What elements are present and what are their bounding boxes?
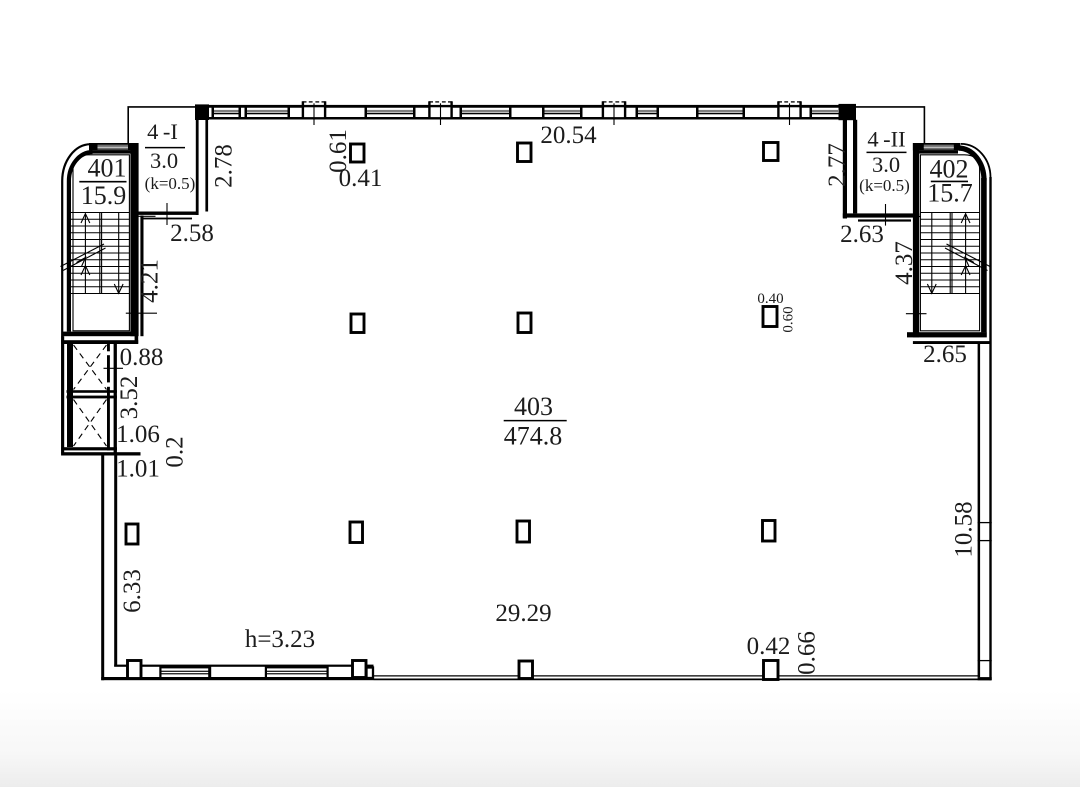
svg-text:2.65: 2.65 xyxy=(923,341,967,368)
svg-text:401: 401 xyxy=(88,154,127,183)
svg-text:4.37: 4.37 xyxy=(891,241,918,285)
svg-text:0.60: 0.60 xyxy=(780,306,796,332)
svg-text:0.66: 0.66 xyxy=(793,631,820,675)
svg-text:3.0: 3.0 xyxy=(150,148,178,173)
svg-text:0.2: 0.2 xyxy=(161,436,188,467)
svg-text:0.42: 0.42 xyxy=(747,633,791,660)
svg-text:2.78: 2.78 xyxy=(210,144,237,188)
svg-text:6.33: 6.33 xyxy=(119,569,146,613)
svg-text:2.58: 2.58 xyxy=(170,220,214,247)
svg-text:15.7: 15.7 xyxy=(927,179,973,208)
svg-text:4.21: 4.21 xyxy=(136,259,163,303)
svg-text:3.52: 3.52 xyxy=(116,376,143,420)
svg-text:4 -II: 4 -II xyxy=(867,127,905,152)
svg-text:1.06: 1.06 xyxy=(116,421,160,448)
svg-text:h=3.23: h=3.23 xyxy=(245,626,315,653)
svg-text:2.77: 2.77 xyxy=(824,143,851,187)
svg-text:474.8: 474.8 xyxy=(504,422,563,451)
svg-text:10.58: 10.58 xyxy=(950,501,977,557)
svg-text:0.41: 0.41 xyxy=(339,165,383,192)
svg-text:4 -I: 4 -I xyxy=(147,119,178,144)
svg-text:20.54: 20.54 xyxy=(540,122,597,149)
svg-text:15.9: 15.9 xyxy=(81,181,127,210)
svg-text:1.01: 1.01 xyxy=(116,456,160,483)
svg-text:(k=0.5): (k=0.5) xyxy=(859,176,910,195)
svg-text:29.29: 29.29 xyxy=(495,600,551,627)
svg-text:(k=0.5): (k=0.5) xyxy=(145,174,196,193)
svg-text:403: 403 xyxy=(514,392,553,421)
svg-text:0.40: 0.40 xyxy=(757,291,783,307)
svg-text:3.0: 3.0 xyxy=(872,152,900,177)
svg-text:2.63: 2.63 xyxy=(840,221,884,248)
svg-text:0.88: 0.88 xyxy=(120,344,164,371)
